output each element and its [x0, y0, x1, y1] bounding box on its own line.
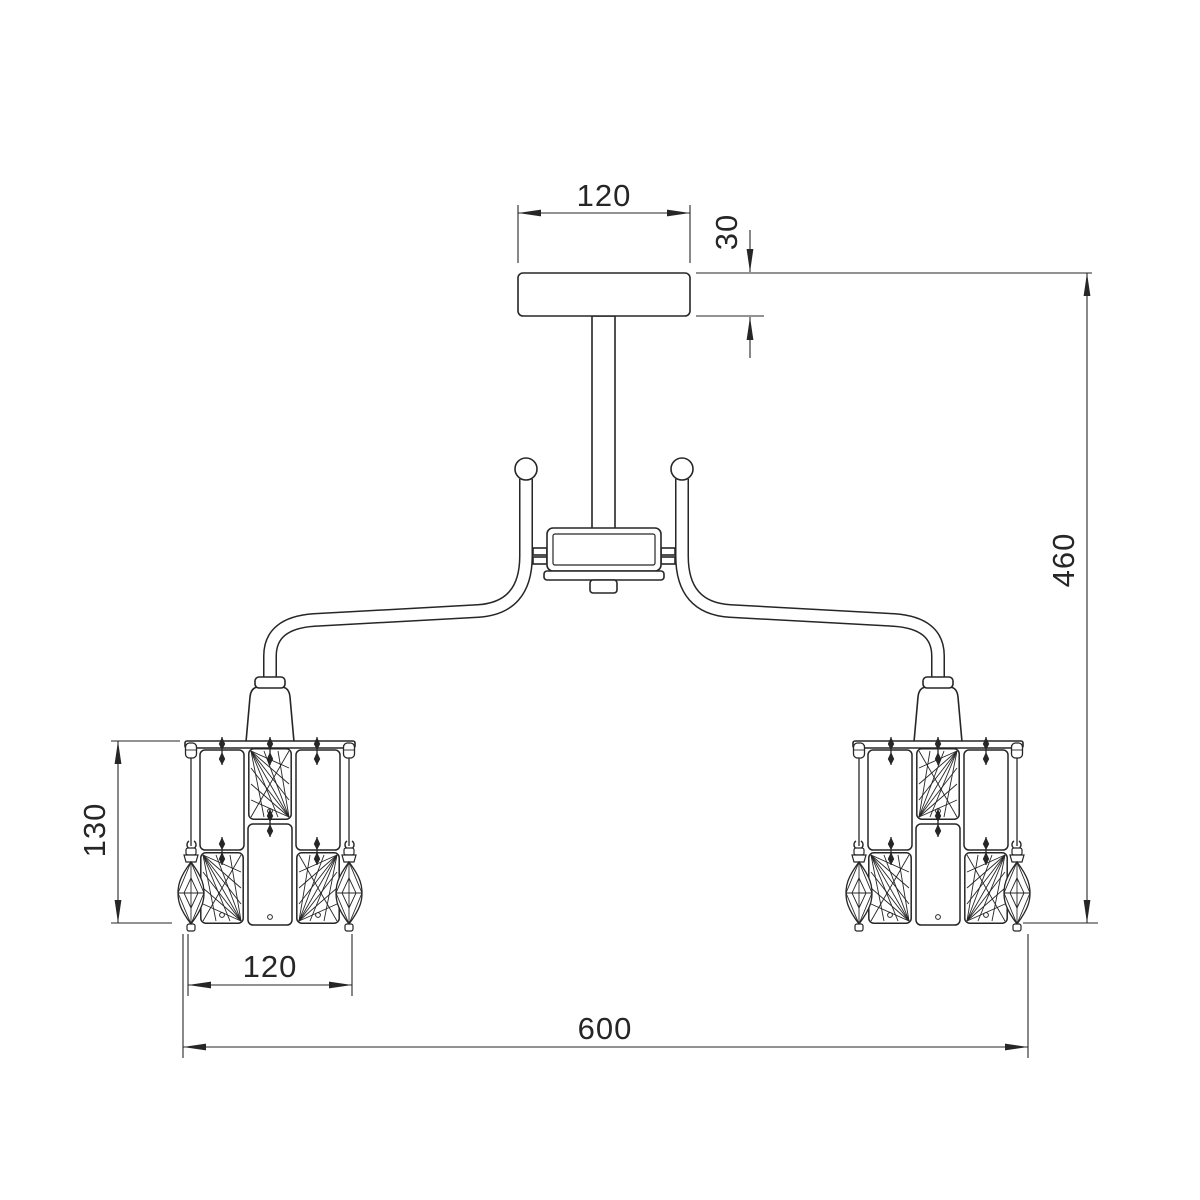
dim-overall-height-label: 460 — [1046, 533, 1081, 588]
ceiling-canopy — [518, 273, 690, 316]
right-arm — [671, 458, 938, 684]
dim-canopy-height-label: 30 — [709, 214, 744, 250]
central-hub — [533, 528, 675, 593]
hub-bottom-stub — [590, 580, 617, 593]
hub-connector-right — [661, 548, 675, 555]
dim-shade-width-label: 120 — [243, 949, 298, 984]
dim-shade-width: 120 — [188, 934, 352, 996]
dim-overall-width: 600 — [183, 934, 1028, 1058]
hub-connector-left — [533, 548, 547, 555]
dim-canopy-width-label: 120 — [577, 178, 632, 213]
left-arm — [270, 458, 537, 684]
chandelier-fixture — [178, 273, 1030, 931]
dim-shade-height: 130 — [77, 741, 180, 923]
hub-bottom-plate — [544, 571, 664, 580]
left-crystal-shade — [178, 677, 362, 931]
dim-canopy-width: 120 — [518, 178, 690, 263]
right-crystal-shade — [846, 677, 1030, 931]
technical-drawing-page: 120 30 460 130 120 — [0, 0, 1200, 1200]
dim-overall-height: 460 — [1023, 273, 1098, 923]
dim-overall-width-label: 600 — [578, 1011, 633, 1046]
dim-shade-height-label: 130 — [77, 803, 112, 858]
dim-canopy-height: 30 — [696, 214, 1092, 358]
canopy-stem — [592, 316, 615, 529]
chandelier-technical-drawing: 120 30 460 130 120 — [0, 0, 1200, 1200]
